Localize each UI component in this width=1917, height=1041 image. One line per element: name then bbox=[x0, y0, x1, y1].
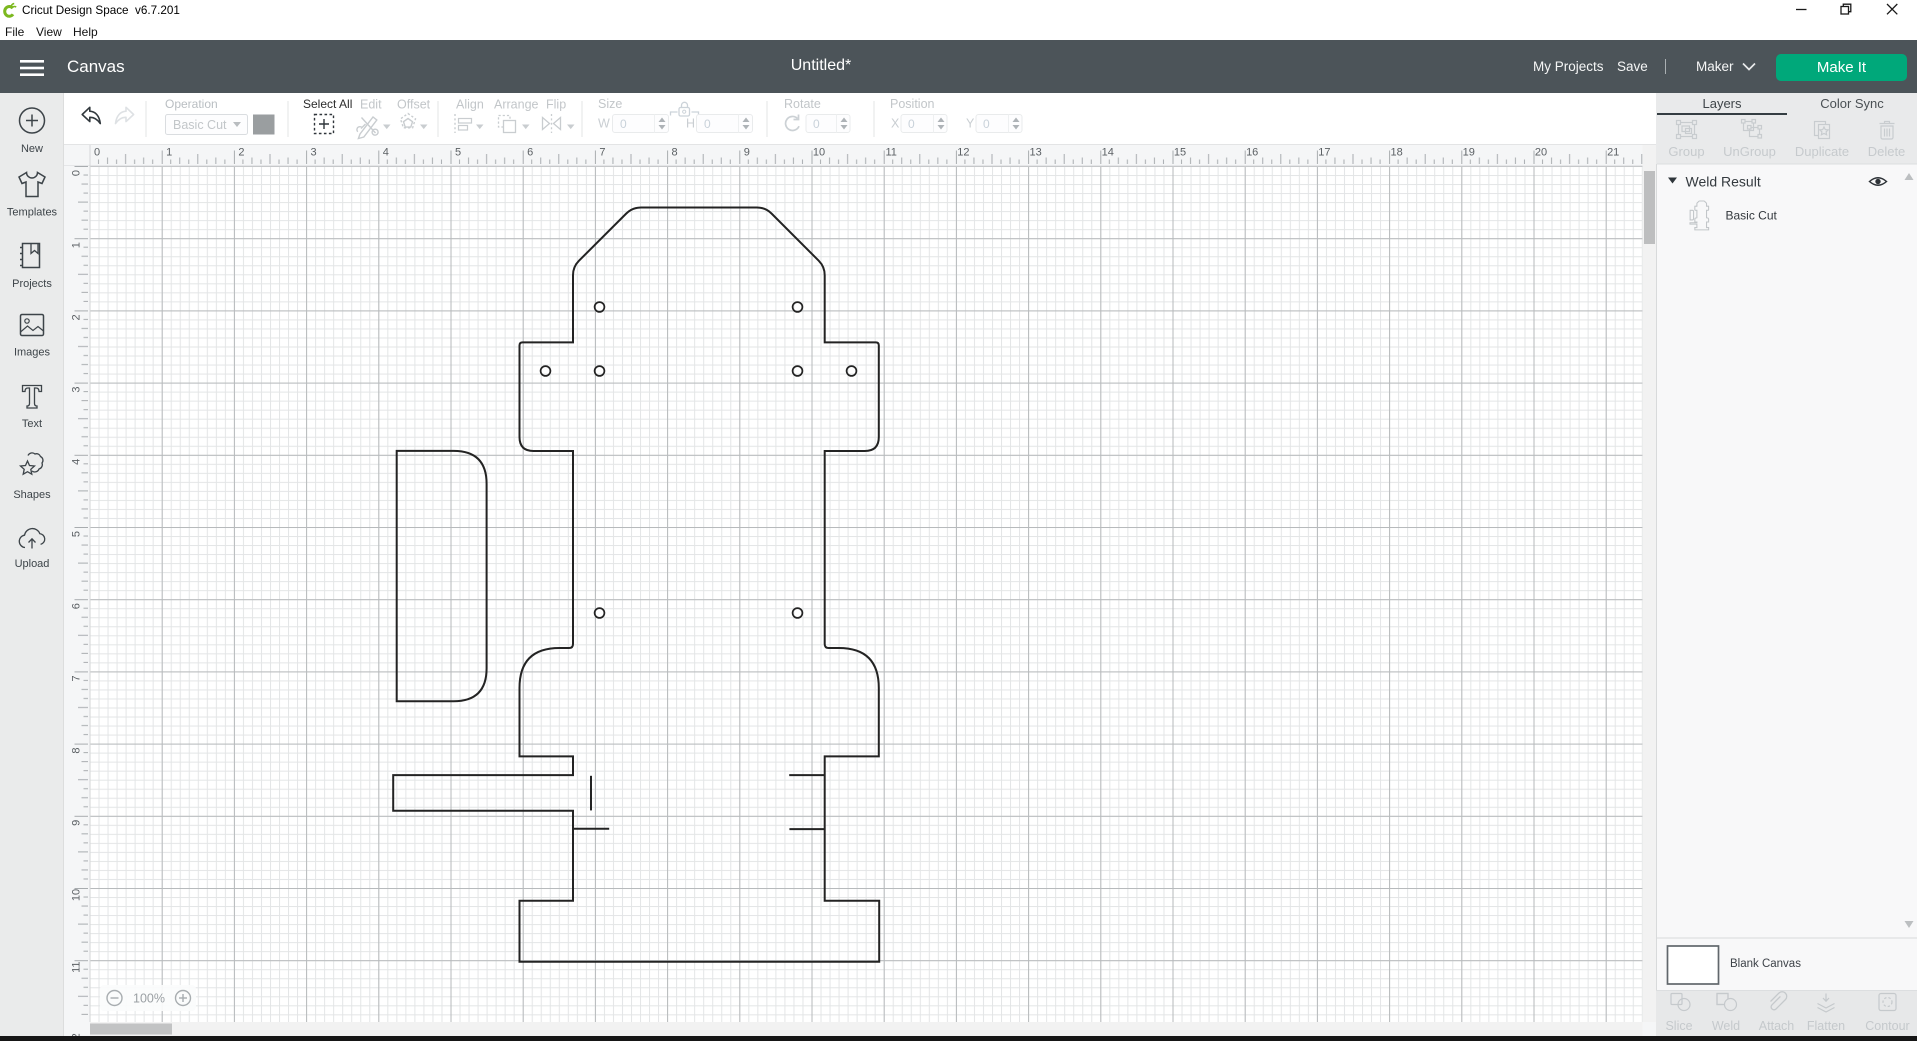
svg-text:0: 0 bbox=[94, 147, 100, 159]
svg-text:7: 7 bbox=[71, 675, 83, 681]
svg-text:8: 8 bbox=[672, 147, 678, 159]
svg-text:0: 0 bbox=[620, 117, 627, 131]
svg-text:Blank Canvas: Blank Canvas bbox=[1730, 958, 1801, 970]
svg-text:3: 3 bbox=[71, 387, 83, 393]
svg-text:Basic Cut: Basic Cut bbox=[173, 118, 227, 132]
svg-text:5: 5 bbox=[71, 531, 83, 537]
svg-text:5: 5 bbox=[455, 147, 461, 159]
svg-text:3: 3 bbox=[311, 147, 317, 159]
svg-text:Projects: Projects bbox=[12, 278, 52, 290]
svg-text:4: 4 bbox=[383, 147, 389, 159]
svg-text:Align: Align bbox=[456, 98, 484, 112]
svg-text:7: 7 bbox=[599, 147, 605, 159]
svg-text:Arrange: Arrange bbox=[494, 98, 539, 112]
svg-text:New: New bbox=[21, 143, 43, 155]
svg-text:8: 8 bbox=[71, 748, 83, 754]
svg-text:Basic Cut: Basic Cut bbox=[1726, 209, 1778, 223]
svg-text:100%: 100% bbox=[133, 992, 165, 1006]
svg-text:2: 2 bbox=[238, 147, 244, 159]
svg-text:H: H bbox=[686, 117, 695, 131]
svg-text:6: 6 bbox=[527, 147, 533, 159]
svg-text:Upload: Upload bbox=[15, 558, 50, 570]
svg-text:Select All: Select All bbox=[303, 97, 352, 111]
svg-text:20: 20 bbox=[1535, 147, 1547, 159]
svg-text:Operation: Operation bbox=[165, 97, 218, 111]
svg-text:Rotate: Rotate bbox=[784, 97, 821, 111]
svg-text:0: 0 bbox=[813, 117, 820, 131]
svg-text:X: X bbox=[891, 117, 900, 131]
svg-text:19: 19 bbox=[1463, 147, 1475, 159]
svg-text:Flatten: Flatten bbox=[1807, 1019, 1845, 1033]
svg-text:16: 16 bbox=[1246, 147, 1258, 159]
svg-text:4: 4 bbox=[71, 459, 83, 465]
svg-text:13: 13 bbox=[1029, 147, 1041, 159]
svg-text:Templates: Templates bbox=[7, 207, 58, 219]
svg-text:Delete: Delete bbox=[1868, 144, 1906, 159]
svg-text:12: 12 bbox=[957, 147, 969, 159]
svg-text:Position: Position bbox=[890, 97, 935, 111]
svg-text:0: 0 bbox=[983, 117, 990, 131]
svg-text:Weld Result: Weld Result bbox=[1686, 174, 1761, 190]
svg-text:Images: Images bbox=[14, 347, 51, 359]
svg-text:9: 9 bbox=[71, 820, 83, 826]
svg-text:0: 0 bbox=[71, 170, 83, 176]
svg-text:Group: Group bbox=[1668, 144, 1704, 159]
svg-text:UnGroup: UnGroup bbox=[1723, 144, 1776, 159]
svg-text:Y: Y bbox=[966, 117, 975, 131]
svg-text:21: 21 bbox=[1607, 147, 1619, 159]
svg-text:0: 0 bbox=[704, 117, 711, 131]
svg-text:2: 2 bbox=[71, 314, 83, 320]
svg-text:Offset: Offset bbox=[397, 98, 431, 112]
svg-text:Contour: Contour bbox=[1865, 1019, 1909, 1033]
svg-text:18: 18 bbox=[1390, 147, 1402, 159]
svg-text:Weld: Weld bbox=[1712, 1019, 1740, 1033]
svg-text:17: 17 bbox=[1318, 147, 1330, 159]
svg-text:9: 9 bbox=[744, 147, 750, 159]
svg-text:Size: Size bbox=[598, 97, 622, 111]
svg-text:Attach: Attach bbox=[1759, 1019, 1794, 1033]
svg-text:0: 0 bbox=[908, 117, 915, 131]
svg-text:Duplicate: Duplicate bbox=[1795, 144, 1849, 159]
svg-text:14: 14 bbox=[1102, 147, 1114, 159]
svg-text:W: W bbox=[598, 117, 610, 131]
svg-text:15: 15 bbox=[1174, 147, 1186, 159]
svg-text:1: 1 bbox=[71, 242, 83, 248]
svg-text:11: 11 bbox=[71, 961, 83, 972]
svg-text:6: 6 bbox=[71, 603, 83, 609]
svg-text:Shapes: Shapes bbox=[13, 489, 51, 501]
svg-text:10: 10 bbox=[71, 889, 83, 901]
svg-text:Edit: Edit bbox=[360, 98, 382, 112]
svg-text:11: 11 bbox=[885, 147, 896, 159]
svg-text:Slice: Slice bbox=[1665, 1019, 1692, 1033]
svg-text:10: 10 bbox=[813, 147, 825, 159]
svg-text:Flip: Flip bbox=[546, 98, 566, 112]
svg-text:1: 1 bbox=[166, 147, 172, 159]
svg-text:Text: Text bbox=[22, 418, 42, 430]
